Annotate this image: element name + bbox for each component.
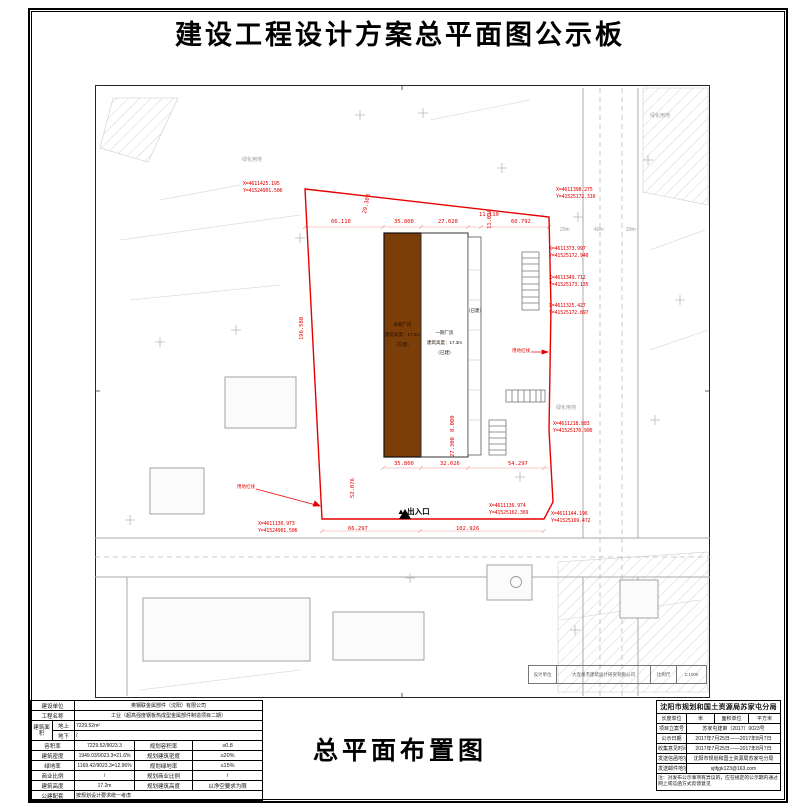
authority-header: 沈阳市规划和国土资源局苏家屯分局	[657, 701, 781, 714]
unit-length-label: 长度单位	[657, 714, 687, 724]
bottom-title: 总平面布置图	[0, 731, 800, 767]
page-title: 建设工程设计方案总平面图公示板	[0, 13, 800, 52]
public-facility-label: 公建配套	[31, 791, 75, 801]
project-name-label: 工程名称	[31, 711, 75, 721]
height-value: 17.2m	[75, 781, 135, 791]
owner-value: 奥钢联金属部件（沈阳）有限公司	[75, 701, 263, 711]
entrance-icon	[399, 509, 411, 519]
owner-label: 建设单位	[31, 701, 75, 711]
height-label: 建筑高度	[31, 781, 75, 791]
unit-area-value: 平方米	[749, 714, 781, 724]
design-firm-value: 大连易杰建筑设计研究有限公司	[557, 666, 651, 684]
unit-length-value: 米	[687, 714, 715, 724]
area-above-value: 7229.52m²	[75, 721, 263, 731]
unit-area-label: 面积单位	[715, 714, 749, 724]
hatch-area	[643, 88, 708, 205]
site-plan	[95, 85, 710, 698]
area-above-label: 地上	[53, 721, 75, 731]
notice-note: 注：对发布公示事项有异议的，应在规定的公示期内通过网上或信函方式反馈意见	[657, 774, 781, 791]
notice-board-page: { "sheet": { "title": "建设工程设计方案总平面图公示板",…	[0, 0, 800, 811]
height-plan-value: 以净空要求为限	[193, 781, 263, 791]
drawing-titleblock: 设计单位 大连易杰建筑设计研究有限公司 比例尺 1:1000	[528, 665, 707, 684]
public-facility-value: 按规划设计要求统一考虑	[75, 791, 263, 801]
commercial-plan-value: /	[193, 771, 263, 781]
project-name-value: 工业（超高强度钢板热成型金属部件制造项目二期）	[75, 711, 263, 721]
scale-value: 1:1000	[677, 666, 707, 684]
design-firm-label: 设计单位	[529, 666, 557, 684]
building-annex	[468, 237, 481, 455]
scale-label: 比例尺	[651, 666, 677, 684]
hatch-area	[100, 98, 178, 162]
parking-rows	[489, 252, 545, 455]
commercial-label: 商业比例	[31, 771, 75, 781]
building-phase1	[421, 233, 468, 457]
commercial-value: /	[75, 771, 135, 781]
building-current	[384, 233, 421, 457]
commercial-plan-label: 规划商业比例	[135, 771, 193, 781]
height-plan-label: 规划建筑高度	[135, 781, 193, 791]
